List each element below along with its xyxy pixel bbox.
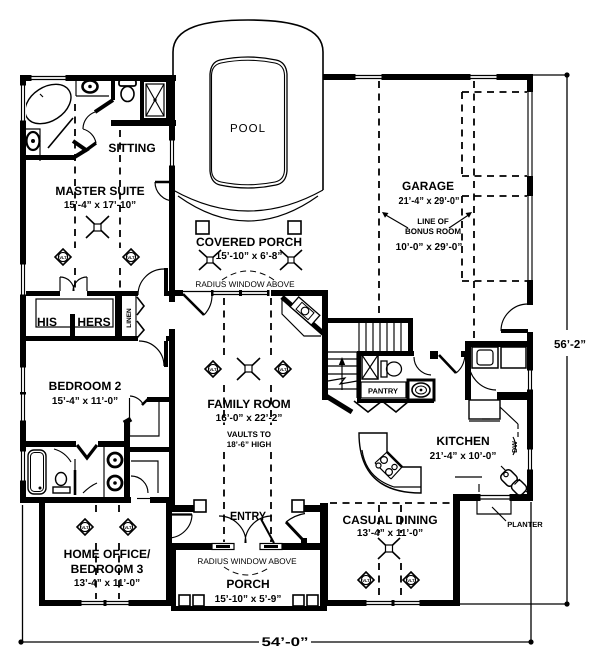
svg-text:10’-0” x 29’-0”: 10’-0” x 29’-0” <box>396 242 463 253</box>
svg-text:VAULTS TO: VAULTS TO <box>227 430 271 439</box>
svg-text:COVERED PORCH: COVERED PORCH <box>196 235 302 249</box>
svg-text:RADIUS WINDOW ABOVE: RADIUS WINDOW ABOVE <box>195 280 295 289</box>
svg-text:CASUAL DINING: CASUAL DINING <box>342 513 437 527</box>
svg-text:GARAGE: GARAGE <box>402 179 454 193</box>
svg-text:HIS: HIS <box>37 315 57 329</box>
svg-text:56’-2”: 56’-2” <box>554 339 586 351</box>
svg-text:54’-0”: 54’-0” <box>262 635 309 649</box>
svg-text:BEDROOM 2: BEDROOM 2 <box>49 379 122 393</box>
svg-text:13’-4” x 11’-0”: 13’-4” x 11’-0” <box>74 578 140 589</box>
svg-text:VLT: VLT <box>279 367 287 372</box>
svg-text:LINE OF: LINE OF <box>417 217 449 226</box>
svg-text:SITTING: SITTING <box>108 141 155 155</box>
svg-text:PORCH: PORCH <box>226 577 269 591</box>
svg-text:21’-4” x 29’-0”: 21’-4” x 29’-0” <box>399 196 460 207</box>
svg-text:18’-6” HIGH: 18’-6” HIGH <box>227 440 272 449</box>
svg-text:KITCHEN: KITCHEN <box>436 434 489 448</box>
svg-text:VLT: VLT <box>59 255 67 260</box>
svg-text:LINEN: LINEN <box>126 308 133 328</box>
svg-text:VLT: VLT <box>209 367 217 372</box>
svg-text:VLT: VLT <box>124 525 132 530</box>
svg-text:BONUS ROOM: BONUS ROOM <box>405 227 461 236</box>
svg-text:16’-0” x 22’-2”: 16’-0” x 22’-2” <box>216 413 283 424</box>
svg-text:15’-4” x 11’-0”: 15’-4” x 11’-0” <box>52 396 118 407</box>
svg-text:15’-10” x 5’-9”: 15’-10” x 5’-9” <box>215 594 282 605</box>
svg-text:13’-4” x 11’-0”: 13’-4” x 11’-0” <box>357 528 423 539</box>
svg-text:PANTRY: PANTRY <box>368 387 398 396</box>
svg-text:VLT: VLT <box>407 578 415 583</box>
svg-text:VLT: VLT <box>127 255 135 260</box>
svg-text:21’-4” x 10’-0”: 21’-4” x 10’-0” <box>430 451 497 462</box>
svg-text:VLT: VLT <box>81 525 89 530</box>
svg-text:PLANTER: PLANTER <box>507 520 543 529</box>
svg-text:POOL: POOL <box>230 123 266 135</box>
svg-text:HERS: HERS <box>77 315 110 329</box>
svg-text:HOME OFFICE/: HOME OFFICE/ <box>64 547 151 561</box>
svg-text:VLT: VLT <box>362 578 370 583</box>
svg-text:BEDROOM 3: BEDROOM 3 <box>71 562 144 576</box>
svg-text:15’-10” x 6’-8”: 15’-10” x 6’-8” <box>216 251 283 262</box>
svg-text:RADIUS WINDOW ABOVE: RADIUS WINDOW ABOVE <box>197 557 297 566</box>
svg-text:MASTER SUITE: MASTER SUITE <box>55 184 144 198</box>
svg-text:FAMILY ROOM: FAMILY ROOM <box>207 397 290 411</box>
